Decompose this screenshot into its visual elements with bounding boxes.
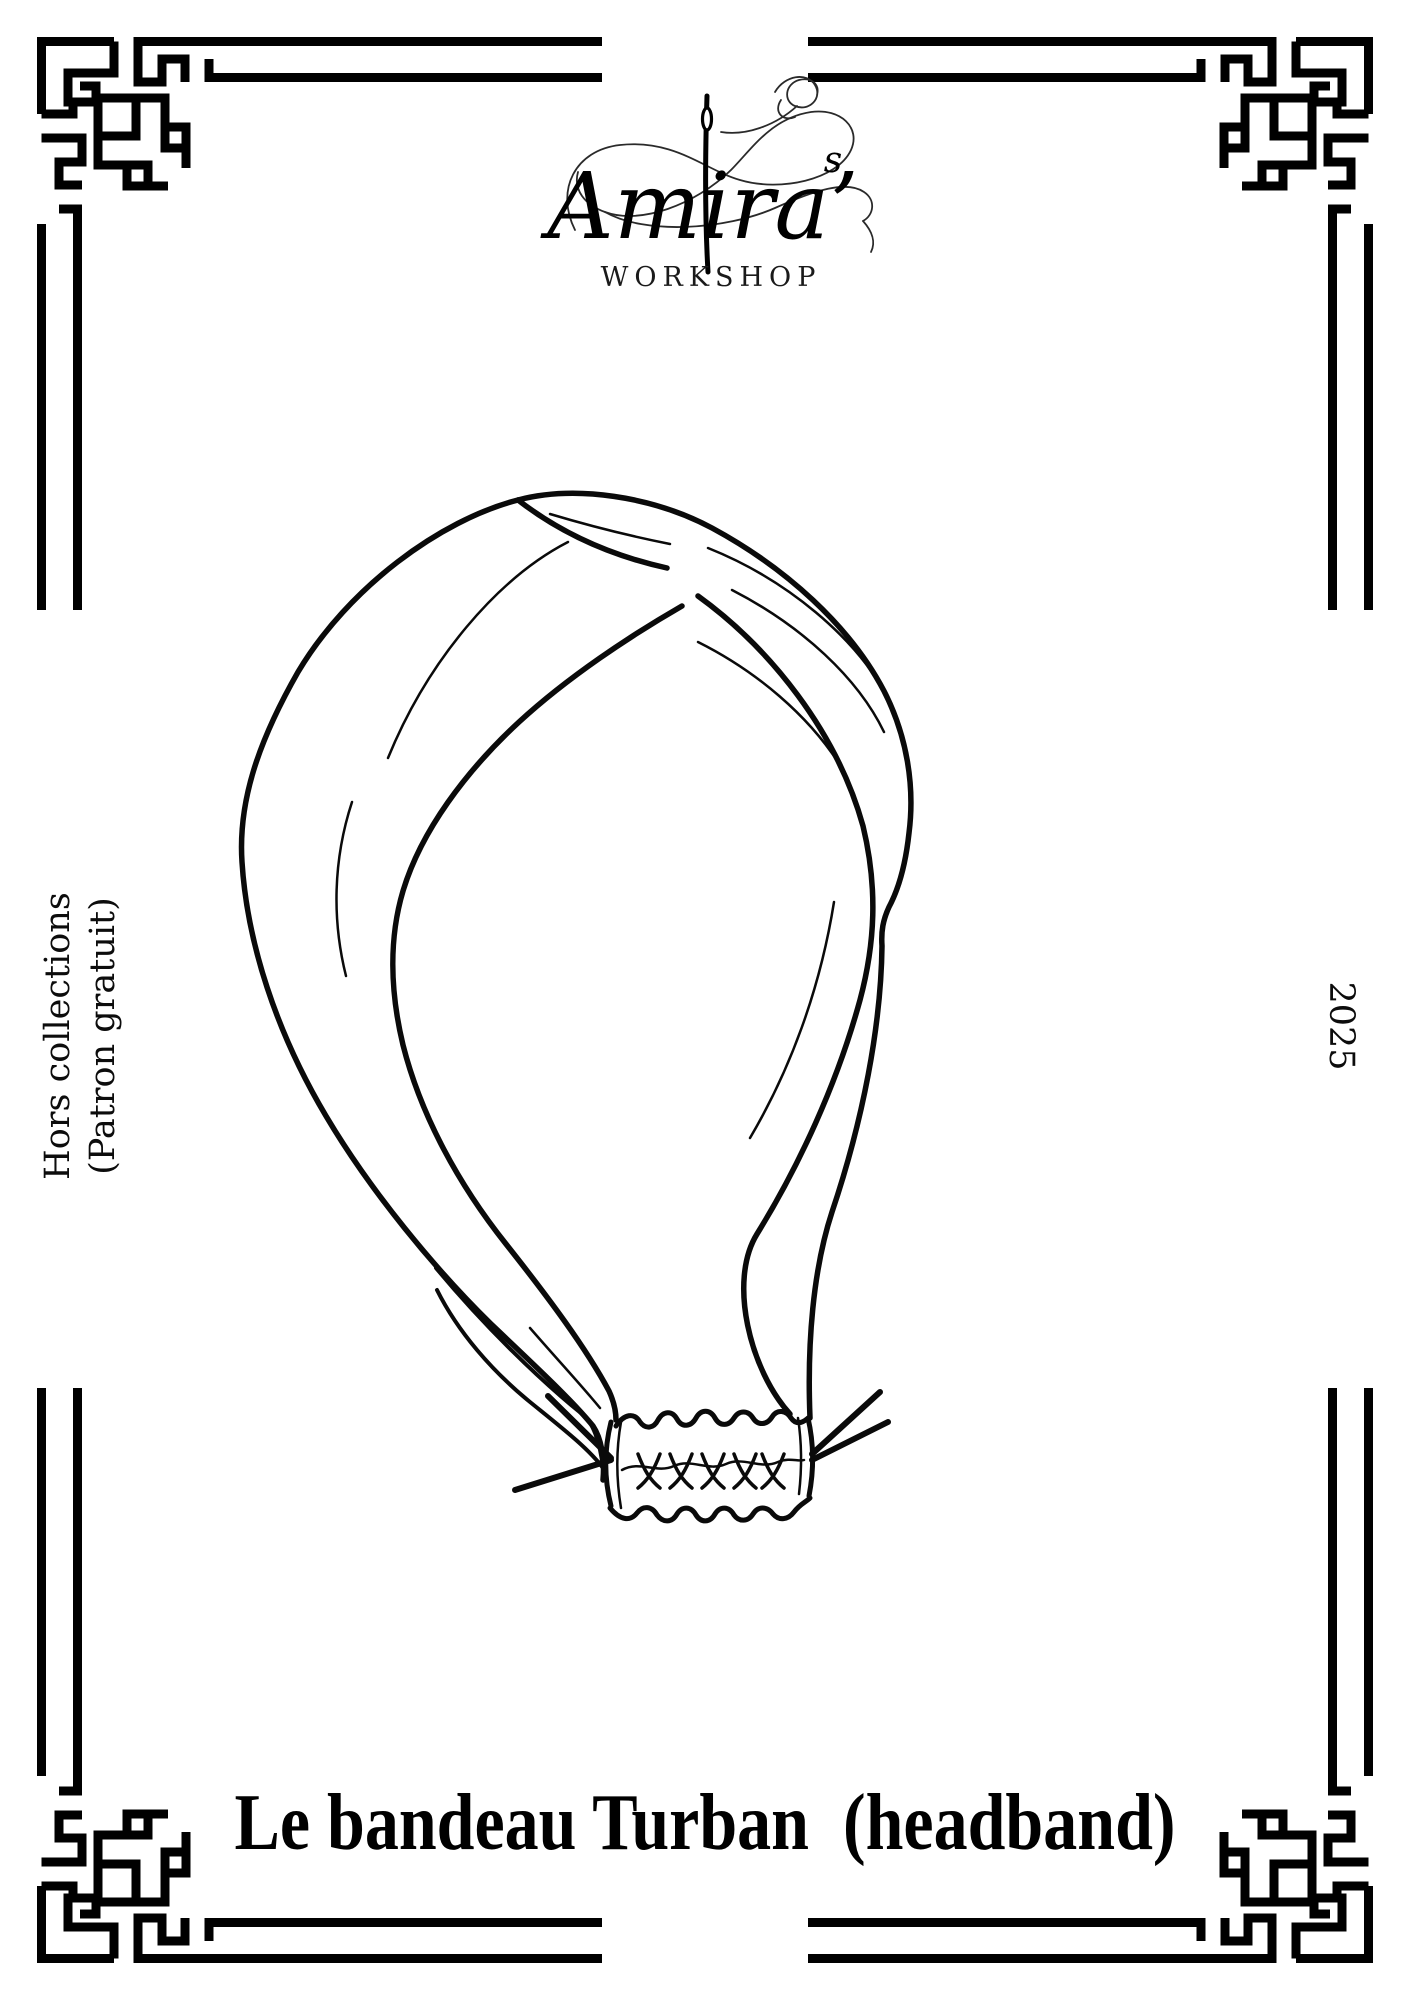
elastic-stitches [638, 1454, 784, 1488]
border-right-inner-top-segment [1328, 224, 1337, 610]
border-right-outer-top-segment [1364, 224, 1373, 610]
brand-script-suffix: s [824, 140, 842, 181]
side-text-year: 2025 [1319, 946, 1361, 1106]
brand-script-name: Amira’ [539, 153, 858, 260]
side-text-left-line2: (Patron gratuit) [81, 826, 126, 1246]
pattern-cover-page: Amira’ s WORKSHOP [0, 0, 1410, 2000]
border-bottom-outer-right-segment [808, 1954, 1186, 1963]
page-title: Le bandeau Turban (headband) [106, 1778, 1305, 1868]
brand-wordmark: WORKSHOP [561, 262, 861, 294]
border-bottom-inner-right-segment [808, 1918, 1186, 1927]
corner-ornament-top-left [28, 28, 228, 228]
band-fold-sliver [436, 1268, 603, 1468]
border-left-outer-bottom-segment [37, 1388, 46, 1776]
border-left-inner-top-segment [73, 224, 82, 610]
side-text-left: Hors collections (Patron gratuit) [36, 826, 128, 1246]
border-left-inner-bottom-segment [73, 1388, 82, 1776]
side-text-left-line1: Hors collections [36, 826, 81, 1246]
turban-headband-illustration [230, 470, 930, 1530]
elastic-shirring [606, 1411, 813, 1521]
border-right-outer-bottom-segment [1364, 1388, 1373, 1776]
border-left-outer-top-segment [37, 224, 46, 610]
border-right-inner-bottom-segment [1328, 1388, 1337, 1776]
corner-ornament-top-right [1182, 28, 1382, 228]
border-bottom-outer-left-segment [224, 1954, 602, 1963]
border-bottom-inner-left-segment [224, 1918, 602, 1927]
